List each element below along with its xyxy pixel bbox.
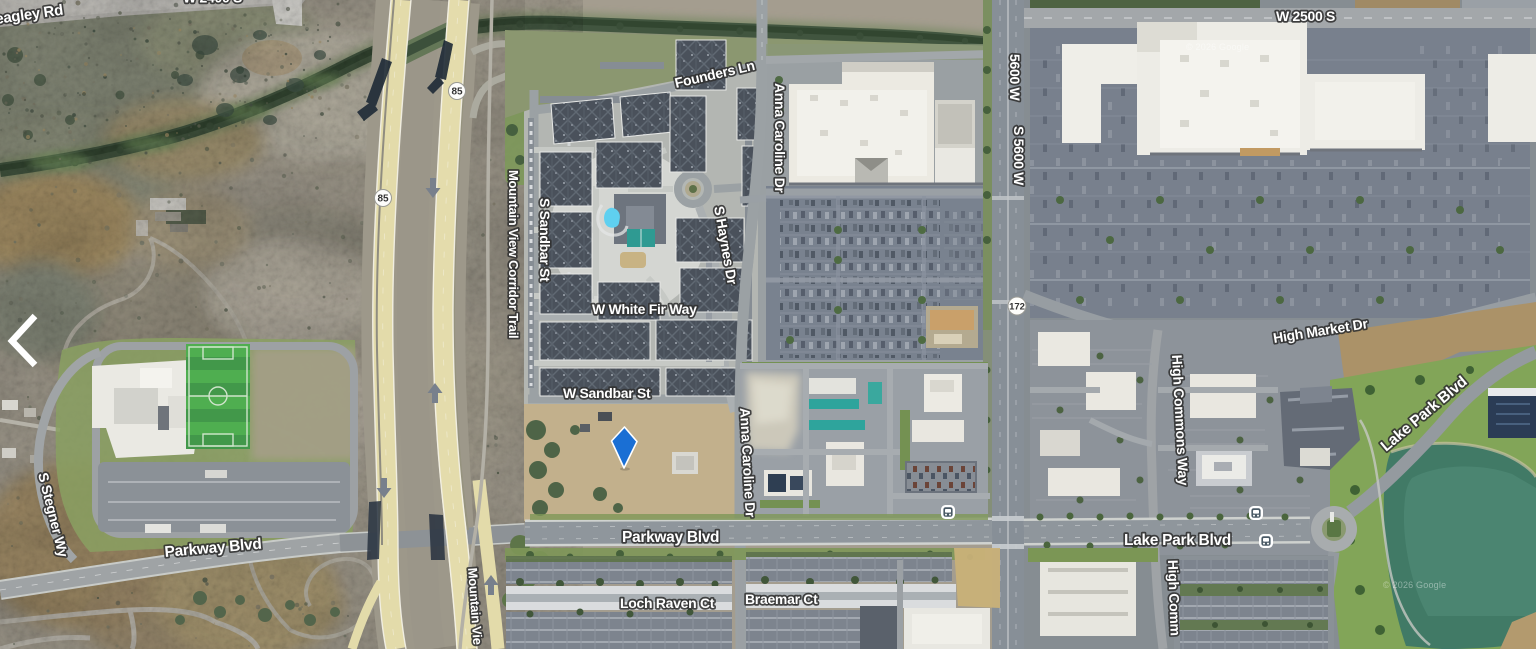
svg-text:S Sandbar St: S Sandbar St <box>537 198 553 282</box>
svg-text:High Comm: High Comm <box>1165 560 1184 636</box>
svg-text:Loch Raven Ct: Loch Raven Ct <box>620 595 715 611</box>
svg-text:85: 85 <box>377 194 389 205</box>
svg-text:© 2026 Google: © 2026 Google <box>1186 42 1249 52</box>
svg-text:W Sandbar St: W Sandbar St <box>563 385 651 401</box>
svg-text:Lake Park Blvd: Lake Park Blvd <box>1124 532 1231 549</box>
svg-text:5600 W: 5600 W <box>1007 54 1023 102</box>
svg-text:W White Fir Way: W White Fir Way <box>592 301 697 317</box>
svg-text:Anna Caroline Dr: Anna Caroline Dr <box>772 83 788 193</box>
svg-text:Mountain View Corridor Trail: Mountain View Corridor Trail <box>506 170 521 338</box>
svg-text:S 5600 W: S 5600 W <box>1011 126 1027 186</box>
svg-text:172: 172 <box>1009 302 1025 313</box>
svg-text:© 2026 Google: © 2026 Google <box>1383 580 1446 590</box>
svg-text:85: 85 <box>451 87 463 98</box>
svg-text:Braemar Ct: Braemar Ct <box>745 591 818 607</box>
svg-text:Parkway Blvd: Parkway Blvd <box>622 529 719 546</box>
svg-text:W 2400 S: W 2400 S <box>183 0 242 6</box>
svg-text:W 2500 S: W 2500 S <box>1276 8 1335 24</box>
